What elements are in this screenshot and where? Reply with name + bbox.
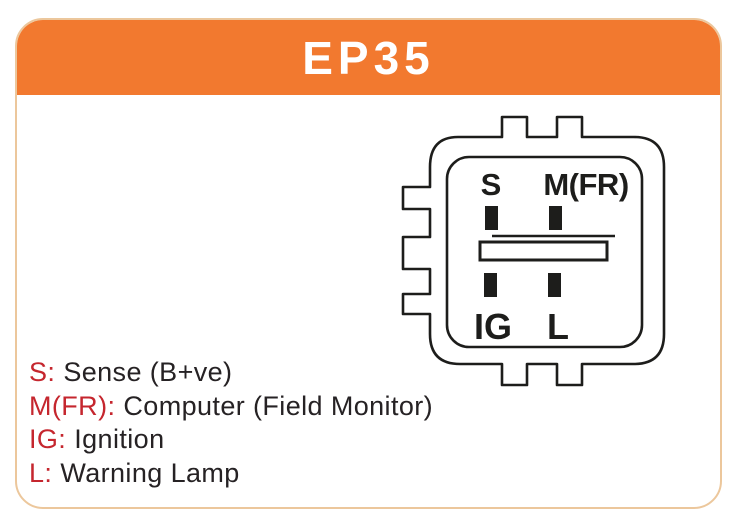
legend: S:Sense (B+ve) M(FR):Computer (Field Mon…: [29, 356, 433, 490]
legend-key: M(FR):: [29, 391, 115, 421]
legend-key: L:: [29, 458, 52, 488]
pin-label-l: L: [547, 306, 569, 347]
legend-description: Computer (Field Monitor): [123, 391, 433, 421]
header-banner: EP35: [15, 18, 722, 95]
legend-item-s: S:Sense (B+ve): [29, 356, 433, 390]
connector-diagram: S M(FR) IG L: [397, 107, 687, 397]
pin-l: [548, 273, 561, 297]
legend-item-ig: IG:Ignition: [29, 423, 433, 457]
legend-item-mfr: M(FR):Computer (Field Monitor): [29, 390, 433, 424]
info-card: EP35 S M(FR) IG L: [15, 18, 722, 509]
pin-s: [485, 206, 498, 230]
page-title: EP35: [302, 33, 435, 81]
legend-description: Sense (B+ve): [63, 357, 232, 387]
pin-mfr: [549, 206, 562, 230]
legend-description: Ignition: [74, 424, 164, 454]
legend-description: Warning Lamp: [60, 458, 239, 488]
pin-ig: [484, 273, 497, 297]
pin-label-ig: IG: [474, 306, 512, 347]
connector-pinout-svg: S M(FR) IG L: [397, 107, 687, 397]
pin-label-s: S: [481, 167, 502, 202]
pin-label-mfr: M(FR): [543, 167, 628, 202]
key-slot: [480, 242, 607, 260]
legend-item-l: L:Warning Lamp: [29, 457, 433, 491]
legend-key: S:: [29, 357, 55, 387]
legend-key: IG:: [29, 424, 66, 454]
page-background: EP35 S M(FR) IG L: [0, 0, 737, 525]
